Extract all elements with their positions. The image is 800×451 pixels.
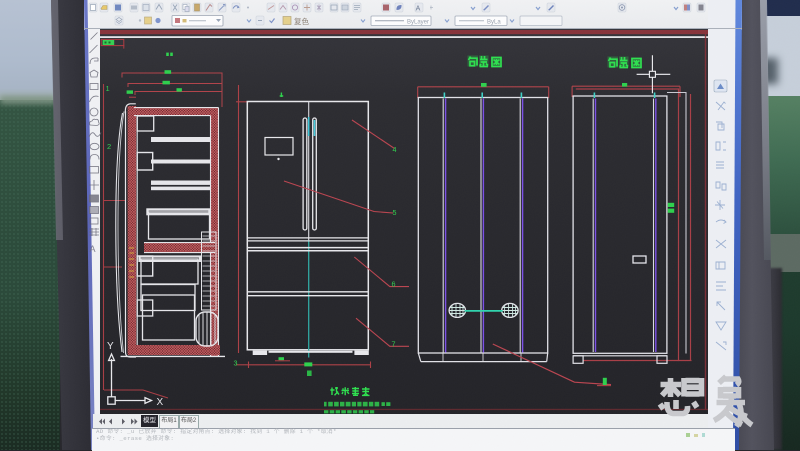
svg-text:7: 7 bbox=[392, 340, 396, 349]
svg-text:6: 6 bbox=[392, 280, 396, 289]
svg-text:X: X bbox=[157, 397, 164, 408]
svg-text:A: A bbox=[416, 5, 421, 12]
svg-text:3: 3 bbox=[234, 359, 238, 368]
svg-text:2: 2 bbox=[107, 142, 111, 151]
svg-text:A: A bbox=[90, 244, 96, 254]
svg-text:复色: 复色 bbox=[294, 16, 309, 26]
svg-text:5: 5 bbox=[393, 208, 397, 217]
svg-text:ByLa: ByLa bbox=[487, 20, 501, 26]
svg-text:4: 4 bbox=[393, 145, 397, 154]
svg-text:Y: Y bbox=[107, 341, 114, 352]
svg-text:ByLayer: ByLayer bbox=[407, 20, 429, 26]
svg-text:1: 1 bbox=[106, 84, 110, 93]
